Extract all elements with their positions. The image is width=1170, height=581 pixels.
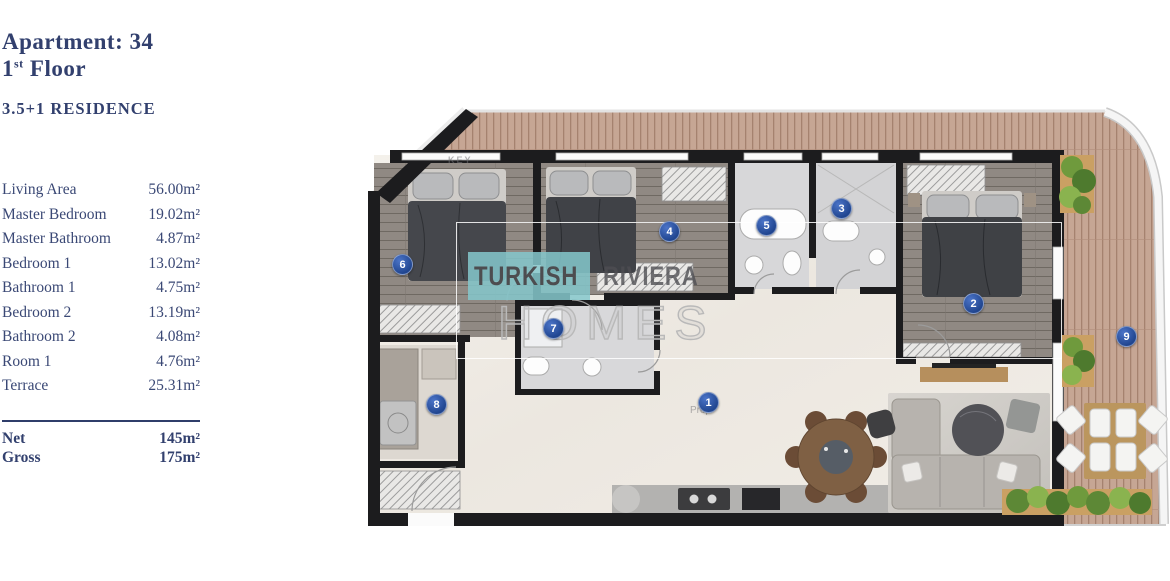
room-area: 4.75m²: [156, 279, 200, 304]
room-label: Bathroom 1: [2, 279, 76, 304]
floor-number: 1: [2, 56, 14, 81]
marker-bathroom-1: 5: [756, 215, 777, 236]
room-label: Bedroom 2: [2, 304, 71, 329]
list-item: Bedroom 113.02m²: [2, 255, 200, 280]
apartment-title: Apartment: 34: [2, 30, 154, 54]
room-area: 4.08m²: [156, 328, 200, 353]
room-label: Terrace: [2, 377, 48, 402]
gross-value: 175m²: [159, 449, 200, 468]
watermark-word-homes: HOMES: [498, 295, 715, 350]
list-item: Bathroom 24.08m²: [2, 328, 200, 353]
list-item: Master Bedroom19.02m²: [2, 206, 200, 231]
gross-label: Gross: [2, 449, 40, 468]
room-area: 4.87m²: [156, 230, 200, 255]
room-area: 25.31m²: [148, 377, 200, 402]
room-area-list: Living Area56.00m² Master Bedroom19.02m²…: [2, 181, 200, 402]
list-item: Bedroom 213.19m²: [2, 304, 200, 329]
room-area: 13.19m²: [148, 304, 200, 329]
divider-line: [2, 420, 200, 422]
room-label: Master Bedroom: [2, 206, 107, 231]
room-area: 4.76m²: [156, 353, 200, 378]
list-item: Master Bathroom4.87m²: [2, 230, 200, 255]
floor-word: Floor: [24, 56, 86, 81]
net-label: Net: [2, 430, 25, 449]
room-label: Master Bathroom: [2, 230, 111, 255]
watermark-word-turkish: TURKISH: [474, 261, 578, 292]
room-label: Room 1: [2, 353, 52, 378]
room-area: 13.02m²: [148, 255, 200, 280]
marker-master-bathroom: 3: [831, 198, 852, 219]
watermark-word-riviera: RIVIERA: [603, 261, 699, 292]
room-label: Bedroom 1: [2, 255, 71, 280]
marker-terrace: 9: [1116, 326, 1137, 347]
faint-key-label: KEY: [448, 155, 473, 165]
room-label: Living Area: [2, 181, 76, 206]
floorplan-drawing: KEY Prop TURKISH RIVIERA HOMES 1 2 3 4 5…: [360, 105, 1170, 565]
marker-living-area: 1: [698, 392, 719, 413]
marker-bathroom-2: 7: [543, 318, 564, 339]
marker-bedroom-2: 6: [392, 254, 413, 275]
room-area: 19.02m²: [148, 206, 200, 231]
list-item: Bathroom 14.75m²: [2, 279, 200, 304]
bed-master: [908, 191, 1036, 297]
floor-title: 1st Floor: [2, 57, 86, 81]
marker-room-1: 8: [426, 394, 447, 415]
list-item: Terrace25.31m²: [2, 377, 200, 402]
marker-bedroom-1: 4: [659, 221, 680, 242]
list-item: Room 14.76m²: [2, 353, 200, 378]
floor-ordinal: st: [14, 56, 24, 70]
floorplan-page: Apartment: 34 1st Floor 3.5+1 RESIDENCE …: [0, 0, 1170, 581]
net-value: 145m²: [159, 430, 200, 449]
marker-master-bedroom: 2: [963, 293, 984, 314]
net-row: Net145m²: [2, 430, 200, 449]
room-area: 56.00m²: [148, 181, 200, 206]
residence-type: 3.5+1 RESIDENCE: [2, 99, 156, 119]
floorplan-svg: [360, 105, 1170, 565]
net-gross-summary: Net145m² Gross175m²: [2, 430, 200, 467]
list-item: Living Area56.00m²: [2, 181, 200, 206]
room-label: Bathroom 2: [2, 328, 76, 353]
gross-row: Gross175m²: [2, 449, 200, 468]
